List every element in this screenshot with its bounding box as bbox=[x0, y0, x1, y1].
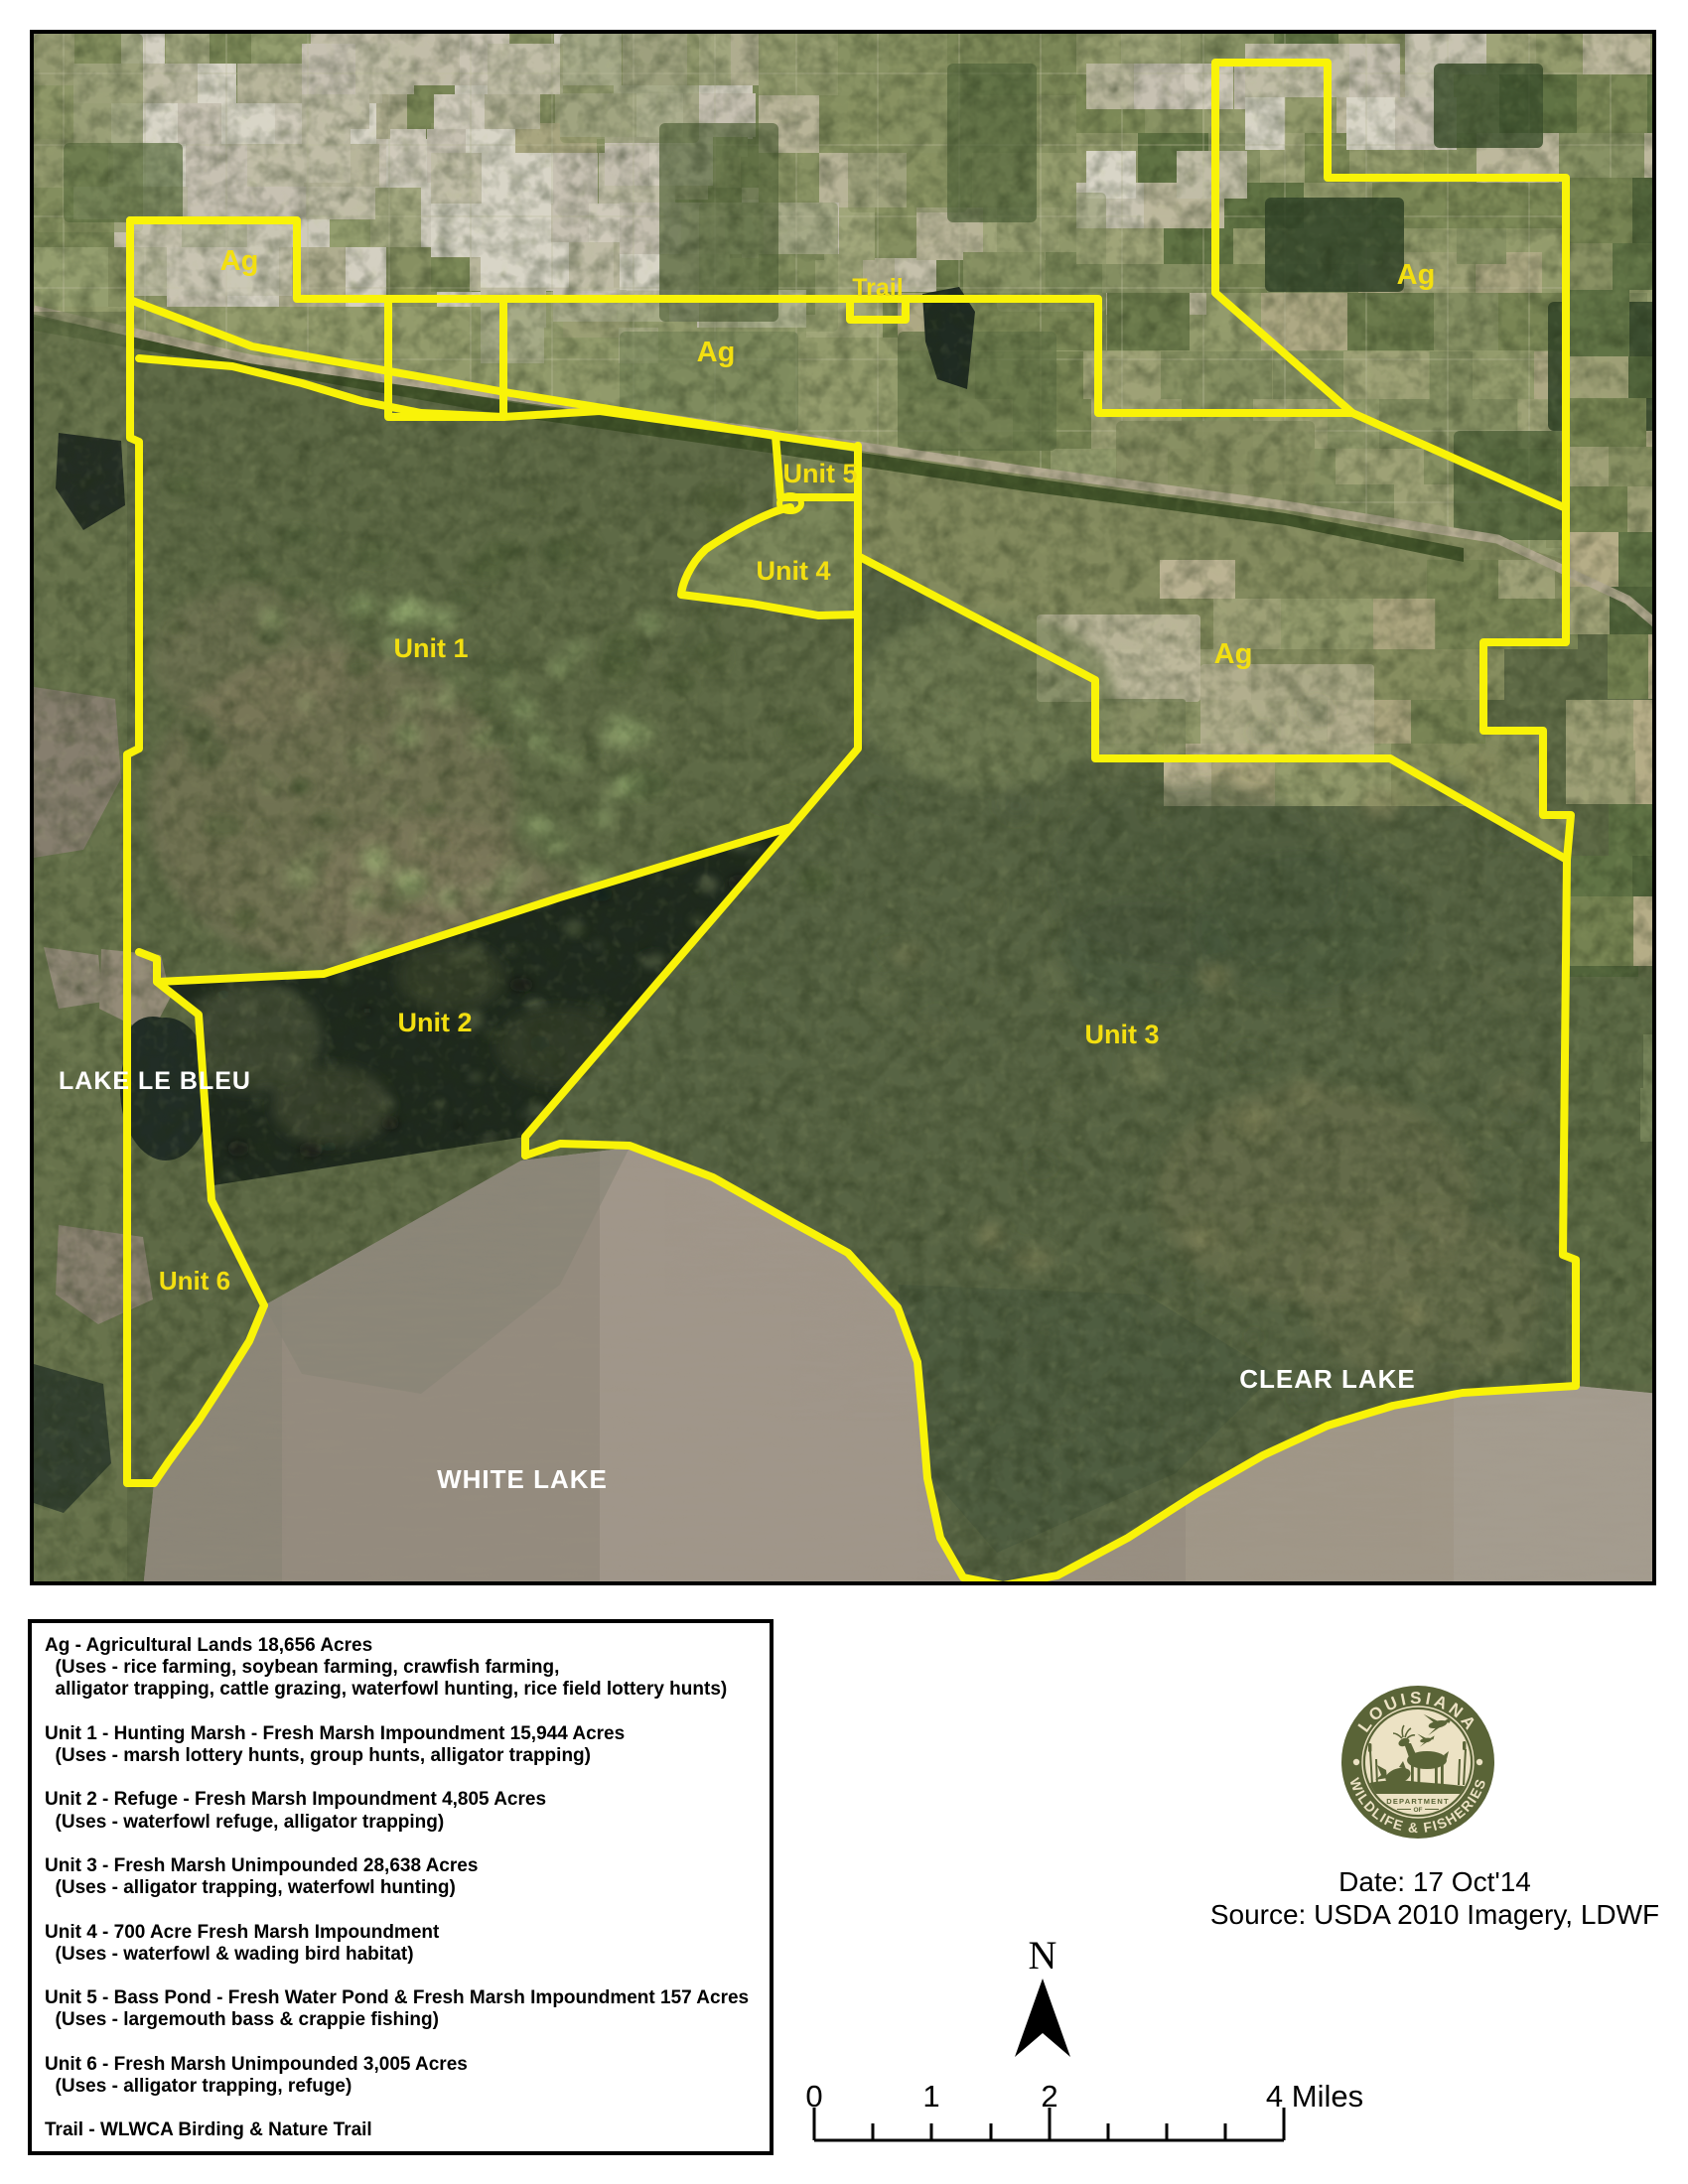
svg-text:Unit 6: Unit 6 bbox=[159, 1266, 230, 1296]
svg-text:2: 2 bbox=[1041, 2079, 1057, 2114]
svg-text:1: 1 bbox=[922, 2079, 939, 2114]
svg-text:DEPARTMENT: DEPARTMENT bbox=[1386, 1797, 1450, 1806]
svg-text:4 Miles: 4 Miles bbox=[1266, 2079, 1363, 2114]
svg-text:0: 0 bbox=[805, 2079, 822, 2114]
svg-text:Unit 1: Unit 1 bbox=[393, 633, 468, 663]
svg-text:Ag: Ag bbox=[697, 337, 736, 368]
svg-text:Unit 3: Unit 3 bbox=[1084, 1020, 1159, 1049]
svg-text:Ag: Ag bbox=[1214, 638, 1253, 670]
svg-text:Trail: Trail bbox=[852, 274, 903, 302]
svg-text:OF: OF bbox=[1413, 1807, 1422, 1814]
svg-text:Unit 4: Unit 4 bbox=[756, 556, 830, 586]
svg-text:Ag: Ag bbox=[1397, 259, 1436, 291]
svg-text:WHITE LAKE: WHITE LAKE bbox=[437, 1464, 608, 1494]
svg-text:LAKE LE BLEU: LAKE LE BLEU bbox=[59, 1067, 251, 1095]
svg-text:Unit 5: Unit 5 bbox=[782, 459, 857, 488]
svg-text:Ag: Ag bbox=[220, 245, 259, 277]
svg-text:CLEAR LAKE: CLEAR LAKE bbox=[1239, 1364, 1416, 1394]
svg-text:Unit 2: Unit 2 bbox=[397, 1008, 472, 1037]
